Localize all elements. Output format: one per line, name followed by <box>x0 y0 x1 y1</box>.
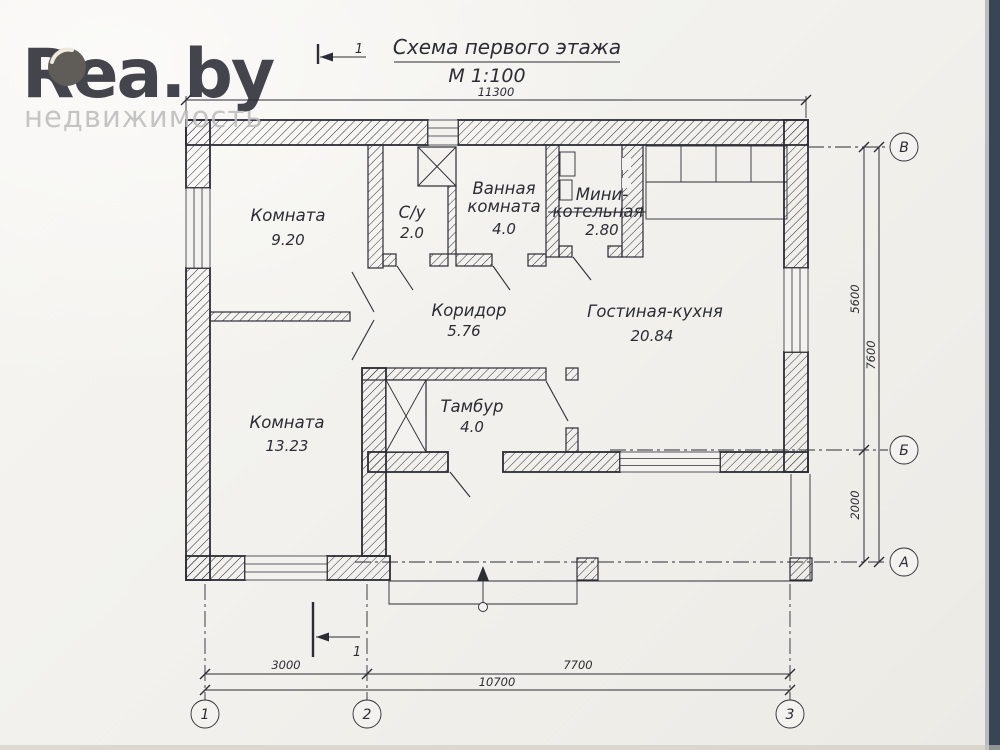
wall-tambour-west <box>362 368 386 556</box>
door-boiler <box>572 246 608 280</box>
label-boiler-line2: котельная <box>553 202 644 221</box>
window-top-vent <box>428 120 458 145</box>
label-room2-name: Комната <box>250 413 325 432</box>
wall-south-c <box>720 452 808 472</box>
dimension-lines: 11300 5600 2000 7600 3000 7700 10700 <box>181 85 884 695</box>
tambour-north-pier <box>566 368 578 380</box>
section-label-bottom: 1 <box>353 645 361 660</box>
dim-bottom-right: 7700 <box>563 658 592 672</box>
dim-bottom-total: 10700 <box>479 675 516 689</box>
axis-marker-A: А <box>898 555 909 571</box>
entrance-porch <box>389 566 577 612</box>
kitchen-counter <box>646 146 787 219</box>
label-room1-area: 9.20 <box>271 231 304 249</box>
dim-right-upper: 5600 <box>848 284 862 313</box>
partition-room1-room2 <box>210 312 350 321</box>
door-room2 <box>352 320 374 360</box>
window-room1-west <box>186 188 210 268</box>
tambour-north-wall <box>362 368 546 380</box>
brand-logo-subtitle: недвижимость <box>24 100 263 134</box>
wall-bottom-left-b <box>327 556 390 580</box>
partition-room1-east <box>368 145 383 268</box>
wall-south-b <box>503 452 620 472</box>
axis-marker-3: 3 <box>786 707 795 723</box>
label-living-name: Гостиная-кухня <box>587 302 723 321</box>
label-room2-area: 13.23 <box>266 437 309 455</box>
partition-su-bath <box>448 186 456 254</box>
label-su-name: С/у <box>399 203 426 222</box>
door-bath <box>492 254 528 290</box>
section-label-top: 1 <box>355 42 363 57</box>
window-room2-south <box>245 556 327 580</box>
axis-marker-2: 2 <box>363 707 372 723</box>
section-mark-top: 1 <box>318 42 366 64</box>
window-living-east <box>784 268 808 352</box>
title-block: Схема первого этажа М 1:100 <box>393 35 621 87</box>
door-tambour-corridor <box>546 368 568 421</box>
label-tambour-name: Тамбур <box>440 397 503 416</box>
entrance-marker-circle <box>479 603 488 612</box>
tambour-east-pier <box>566 428 578 452</box>
logo-watermark: Rea.by недвижимость <box>22 35 275 134</box>
window-living-south <box>620 452 720 472</box>
label-corridor-area: 5.76 <box>447 322 480 340</box>
floor-plan-drawing: 11300 5600 2000 7600 3000 7700 10700 В Б… <box>0 0 1000 750</box>
axis-marker-B: В <box>899 140 909 156</box>
boiler-wall-niche-1 <box>622 158 631 170</box>
drawing-scale: М 1:100 <box>448 65 525 87</box>
door-su <box>396 254 430 290</box>
label-tambour-area: 4.0 <box>460 418 484 436</box>
scan-edge-right <box>989 0 1000 750</box>
terrace-pier-right <box>790 558 812 580</box>
bath-south-stub-left <box>456 254 492 266</box>
door-room1 <box>352 272 374 312</box>
label-bath-line1: Ванная <box>472 179 535 198</box>
scan-edge-bottom <box>0 745 1000 750</box>
label-boiler-area: 2.80 <box>585 221 618 239</box>
wall-bottom-left-a <box>186 556 245 580</box>
drawing-title: Схема первого этажа <box>393 35 621 59</box>
dim-top-total: 11300 <box>478 85 515 99</box>
axis-marker-Bmid: Б <box>899 443 909 459</box>
wall-left-lower <box>186 268 210 580</box>
dim-bottom-left: 3000 <box>271 658 300 672</box>
door-entrance <box>448 452 503 497</box>
boiler-south-stub-right <box>608 246 622 257</box>
dim-right-total: 7600 <box>864 340 878 369</box>
entrance-arrow-head <box>477 566 489 581</box>
su-south-stub-left <box>383 254 396 266</box>
axis-marker-1: 1 <box>201 707 210 723</box>
label-bath-area: 4.0 <box>492 220 516 238</box>
brand-logo-sphere-icon <box>48 48 86 86</box>
wall-right-upper <box>784 120 808 268</box>
wall-top-right-segment <box>458 120 808 145</box>
vent-shaft-top <box>418 147 456 186</box>
terrace <box>389 474 812 581</box>
terrace-pier-left <box>577 558 598 580</box>
scanned-floor-plan: 11300 5600 2000 7600 3000 7700 10700 В Б… <box>0 0 1000 750</box>
bath-south-stub-right <box>528 254 546 266</box>
label-room1-name: Комната <box>251 206 326 225</box>
section-mark-bottom: 1 <box>313 602 361 660</box>
label-living-area: 20.84 <box>631 327 674 345</box>
label-su-area: 2.0 <box>400 224 424 242</box>
partition-bath-boiler <box>546 145 559 257</box>
vent-shaft-tambour <box>386 380 426 452</box>
label-bath-line2: комната <box>467 197 540 216</box>
scan-edge-right-soft <box>985 0 989 750</box>
su-south-stub-right <box>430 254 448 266</box>
boiler-south-stub-left <box>559 246 572 257</box>
label-corridor-name: Коридор <box>432 301 507 320</box>
dim-right-lower: 2000 <box>848 490 862 519</box>
